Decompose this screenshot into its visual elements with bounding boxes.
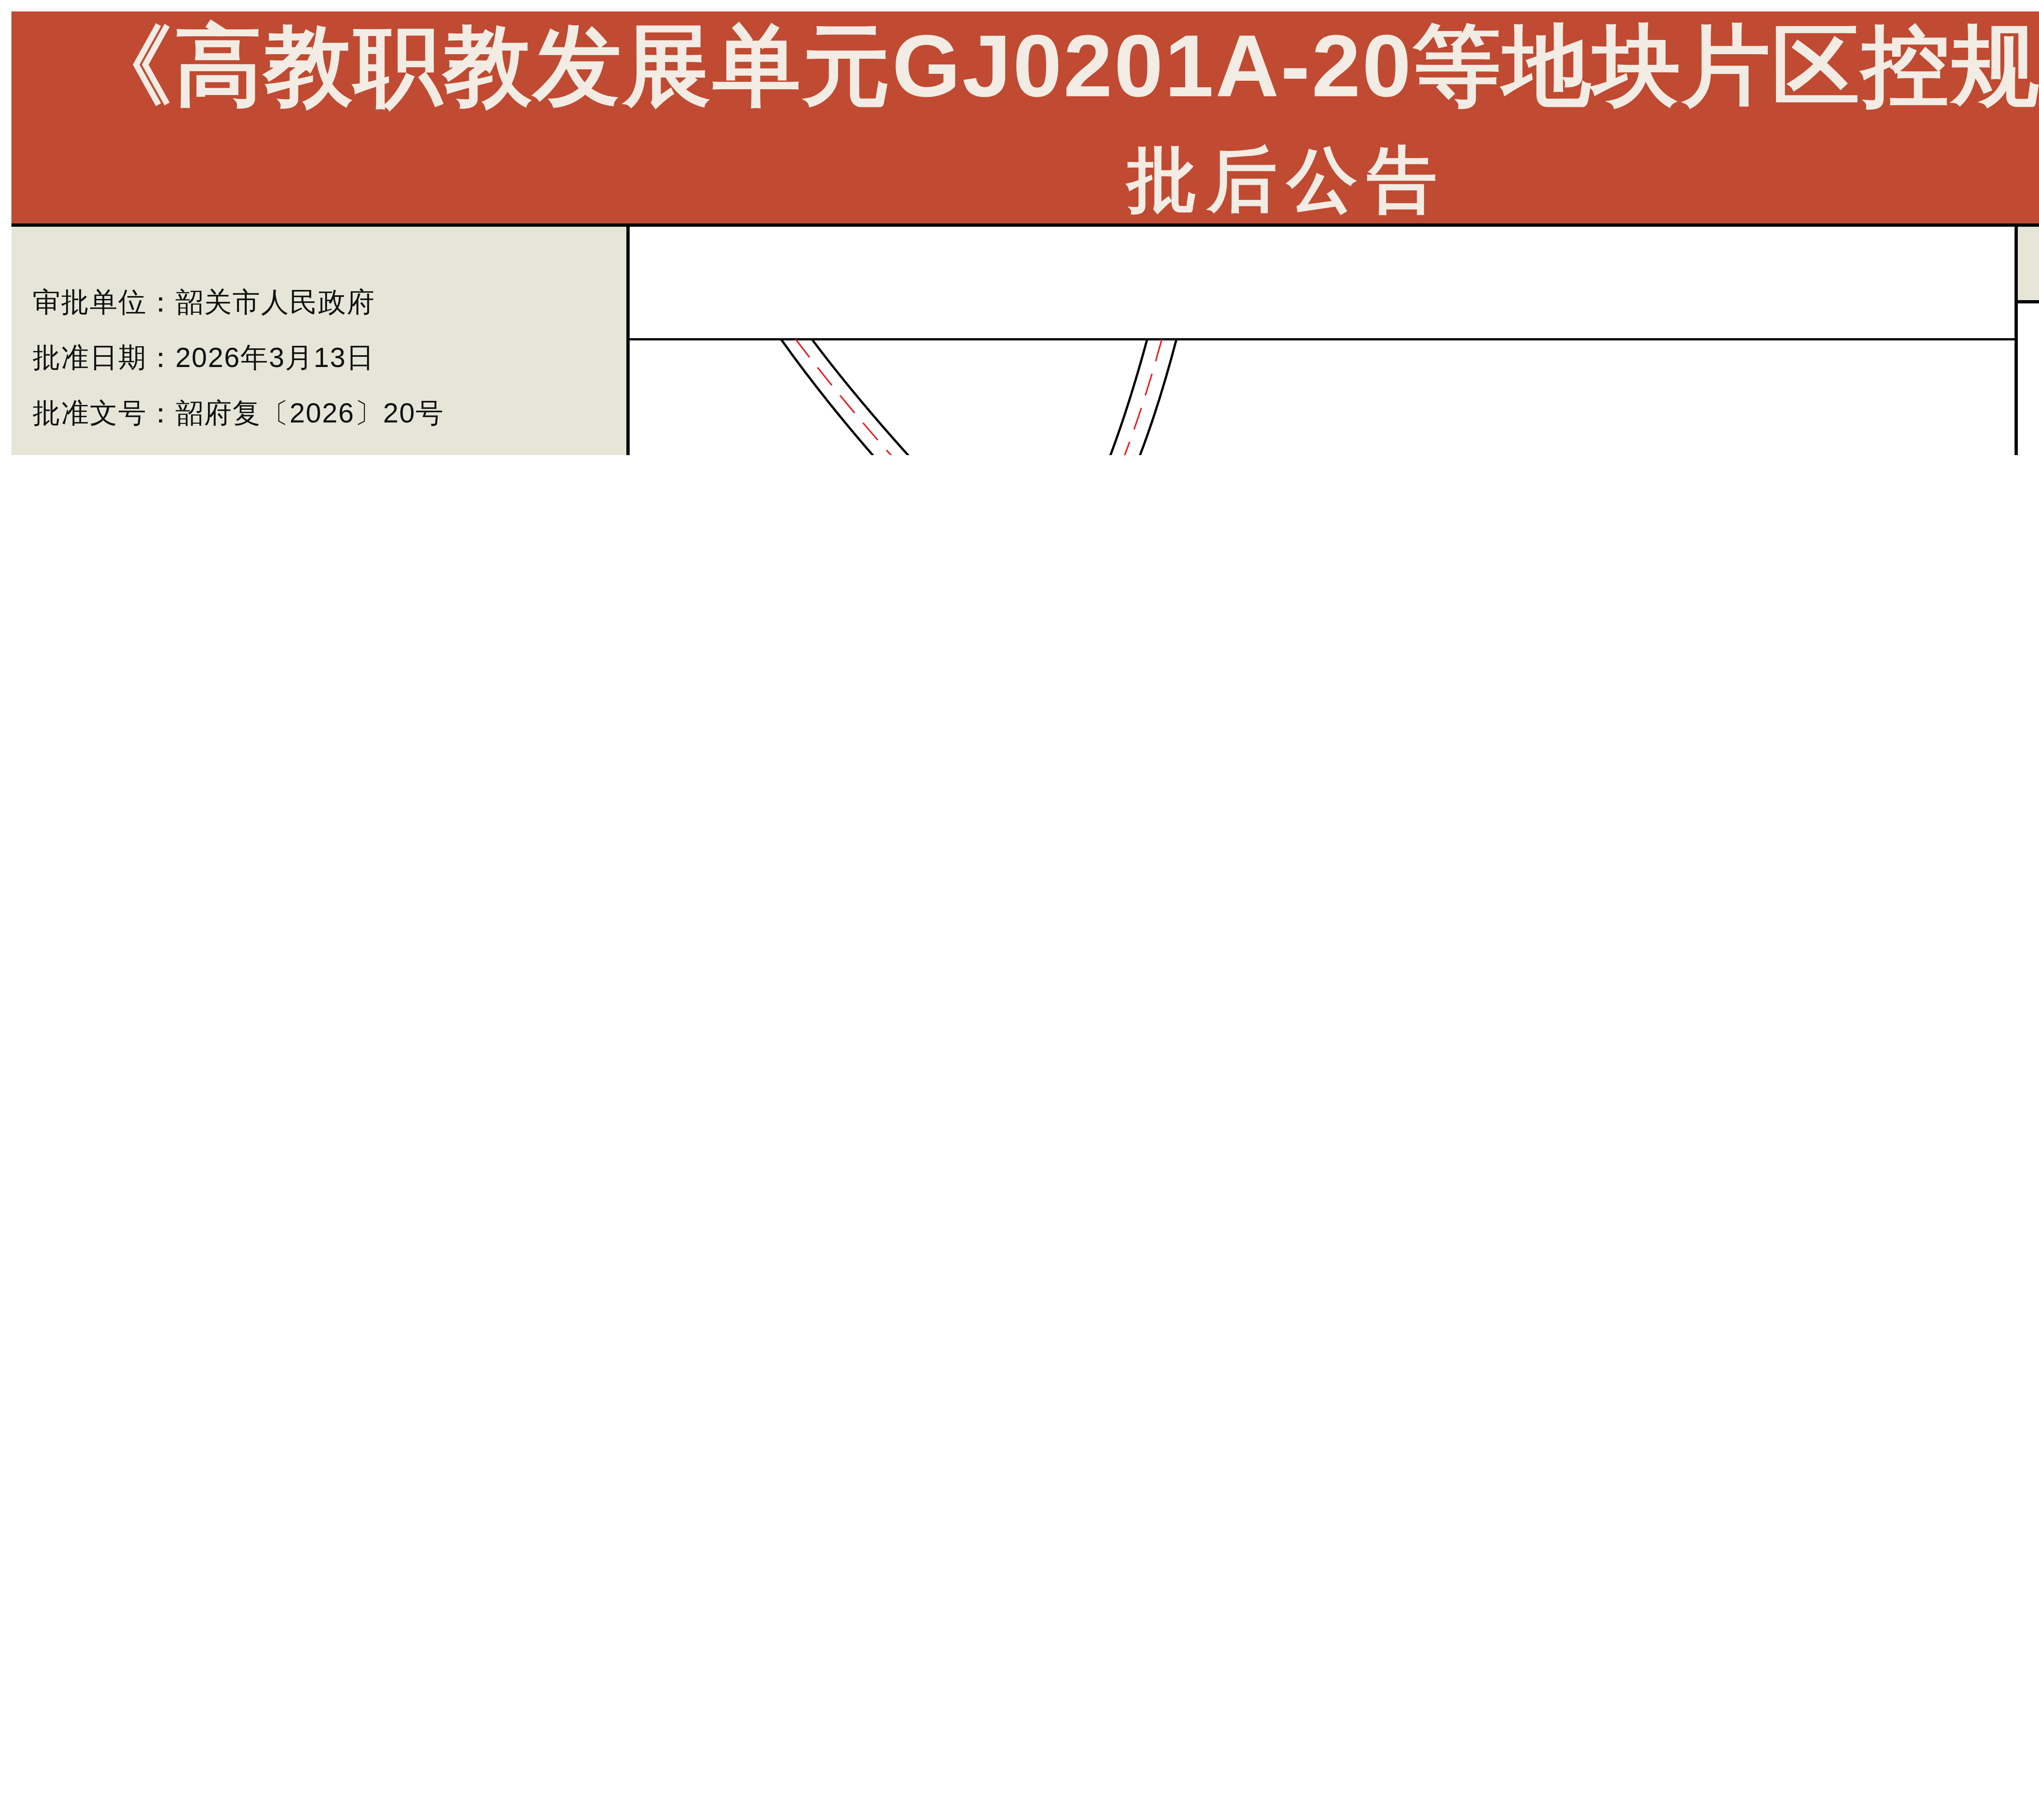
approval-date: 批准日期：2026年3月13日	[33, 331, 605, 387]
road-centerlines	[630, 339, 2015, 455]
announcement-sheet: 《高教职教发展单元GJ0201A-20等地块片区控规局部调整》 批后公告 审批单…	[0, 0, 2039, 455]
road-edges	[630, 339, 2015, 455]
title-banner: 《高教职教发展单元GJ0201A-20等地块片区控规局部调整》 批后公告	[11, 11, 2039, 227]
plan-map: GJ0201A-20A-1 M1 GJ0201A-20A-2 G2 银 山 路 …	[630, 227, 2015, 455]
wind-rose-title: 风玫瑰	[2018, 227, 2039, 303]
wind-rose-area: N	[2018, 303, 2039, 455]
page-title-line1: 《高教职教发展单元GJ0201A-20等地块片区控规局部调整》	[85, 7, 2039, 126]
plan-map-panel: GJ0201A-20A-1 M1 GJ0201A-20A-2 G2 银 山 路 …	[630, 227, 2018, 455]
approval-unit: 审批单位：韶关市人民政府	[33, 276, 605, 331]
info-panel: 审批单位：韶关市人民政府 批准日期：2026年3月13日 批准文号：韶府复〔20…	[11, 227, 630, 455]
page-title-line2: 批后公告	[1127, 133, 1447, 228]
wind-rose-box: 风玫瑰 N	[2018, 227, 2039, 455]
approval-doc-number: 批准文号：韶府复〔2026〕20号	[33, 387, 605, 442]
wind-rose: N	[2018, 303, 2039, 455]
